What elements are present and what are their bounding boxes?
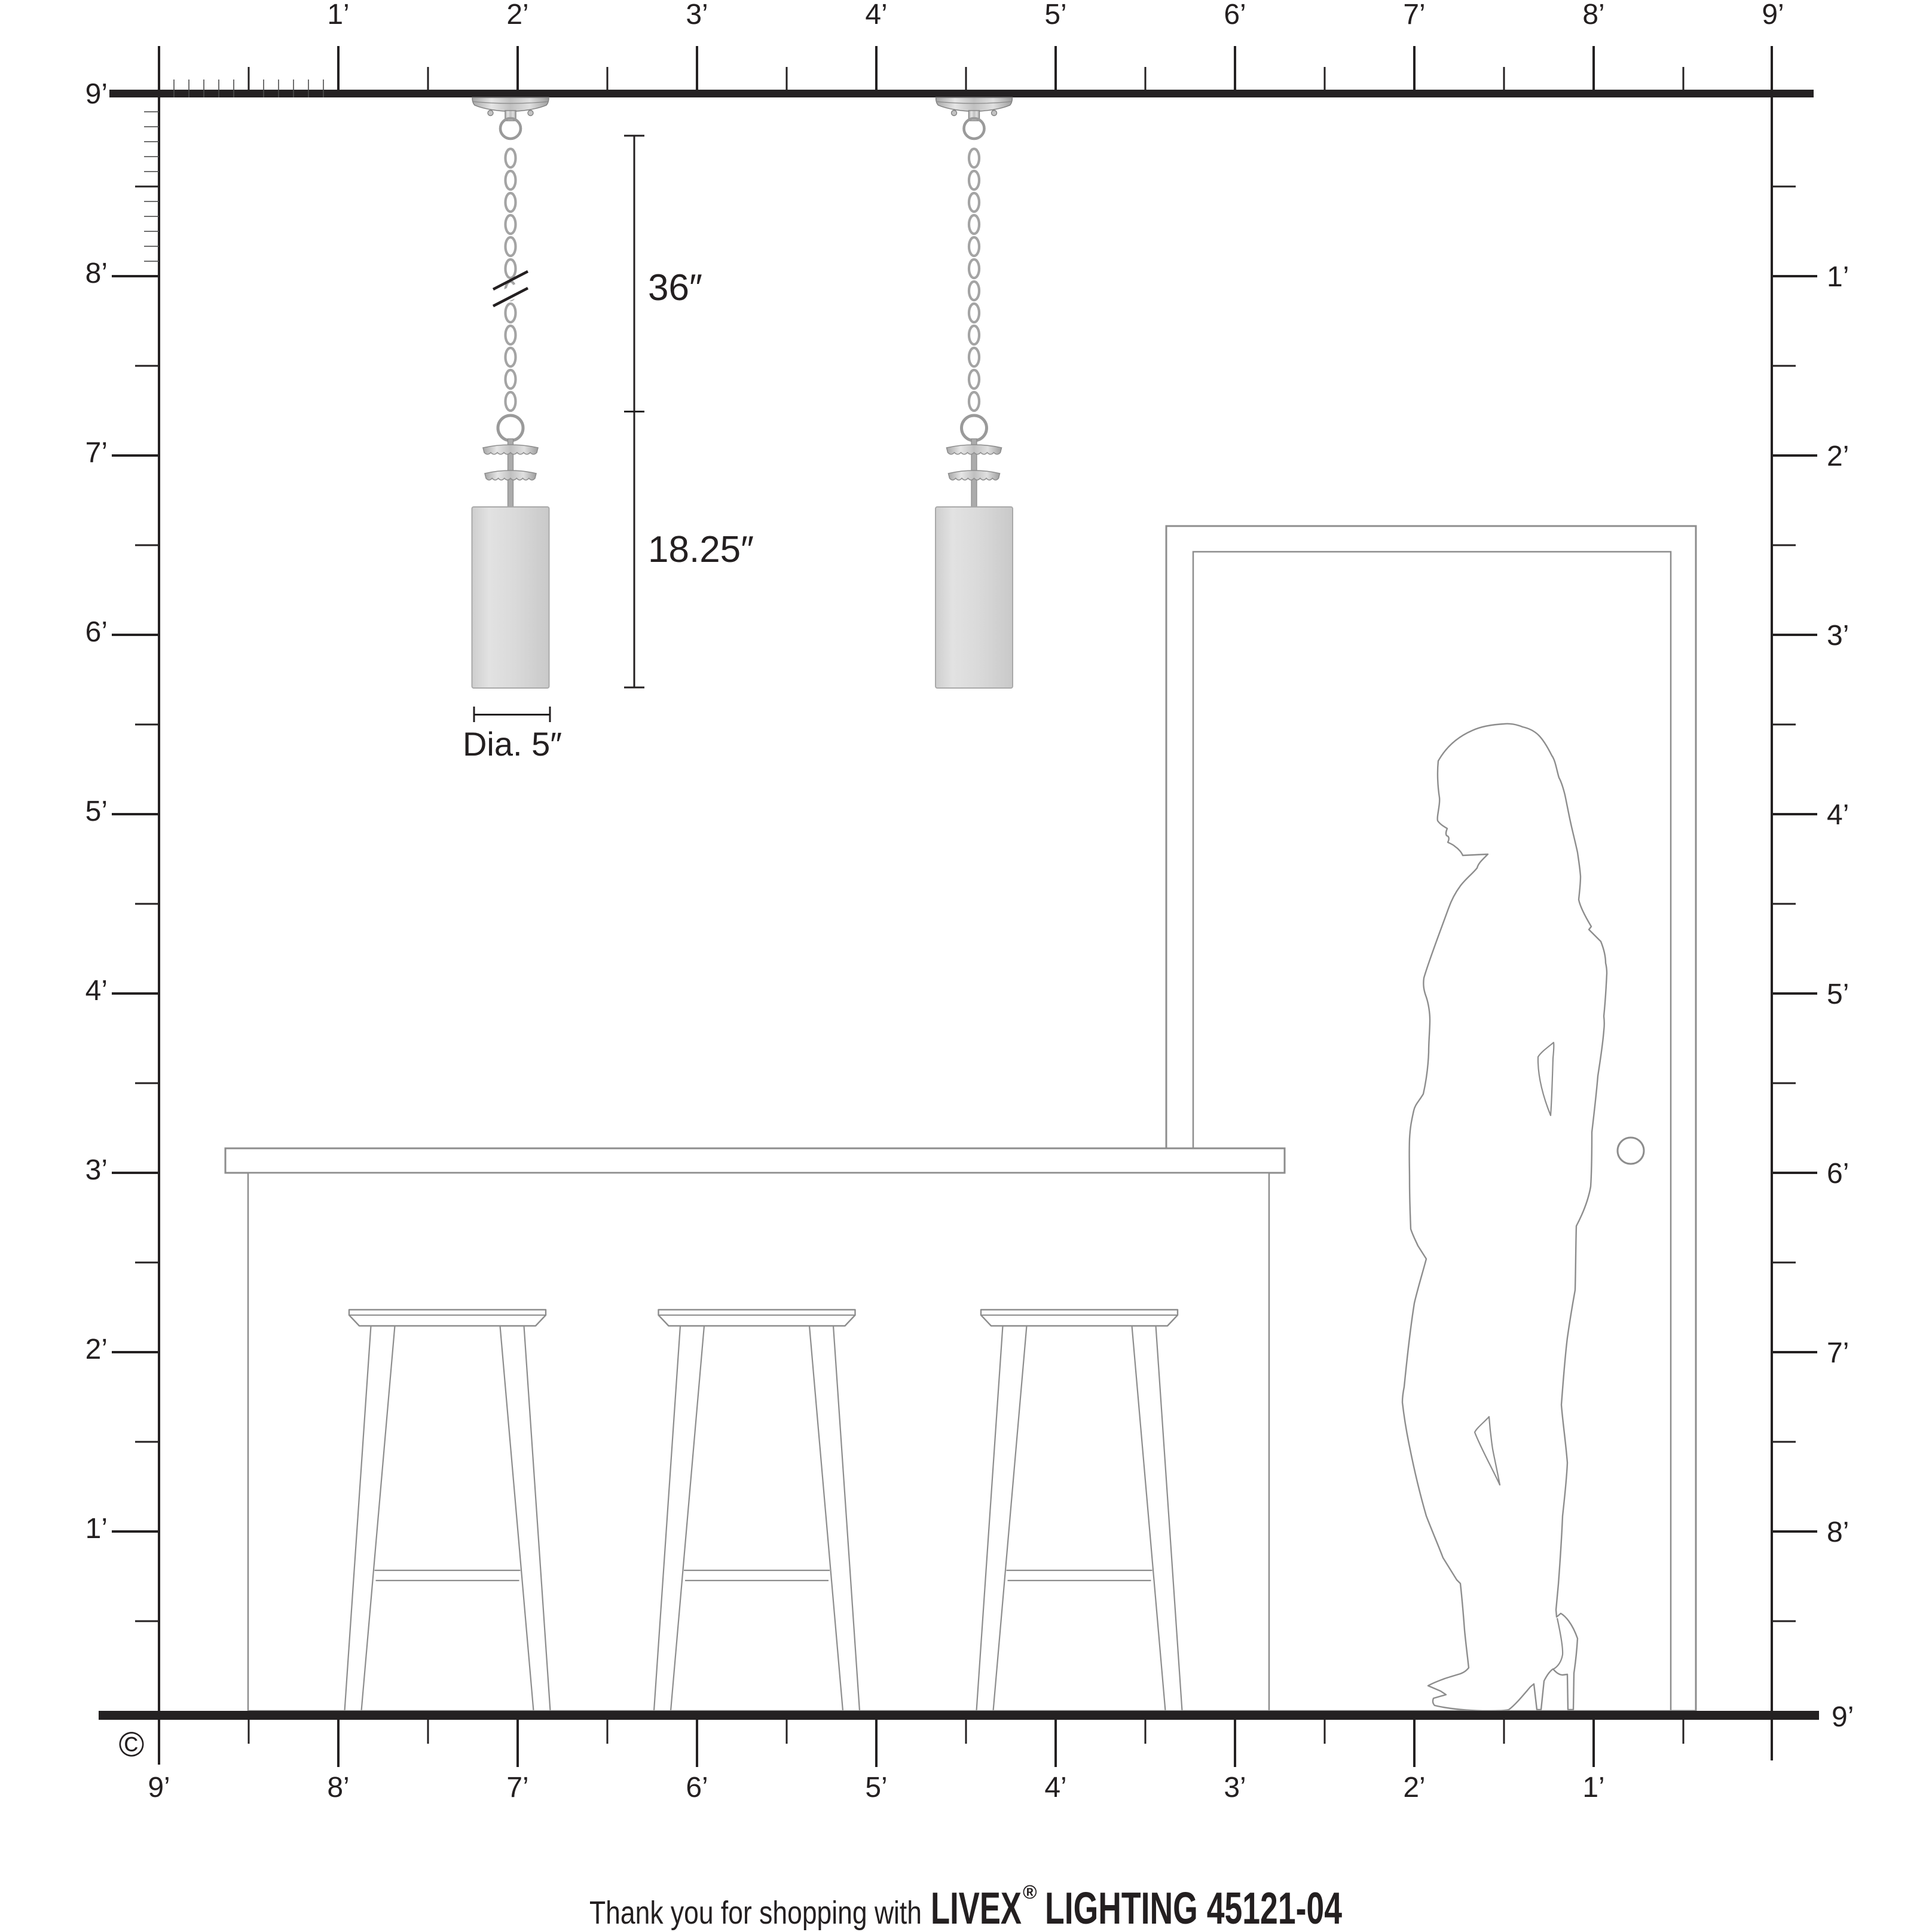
svg-text:8’: 8’: [85, 258, 108, 289]
svg-text:9’: 9’: [1762, 0, 1784, 30]
svg-text:1’: 1’: [1582, 1772, 1604, 1803]
svg-text:36″: 36″: [648, 267, 702, 308]
svg-text:4’: 4’: [85, 975, 108, 1007]
svg-text:8’: 8’: [327, 1772, 349, 1803]
svg-text:9’: 9’: [85, 78, 108, 110]
svg-text:7’: 7’: [506, 1772, 528, 1803]
svg-text:7’: 7’: [85, 437, 108, 469]
svg-text:2’: 2’: [85, 1334, 108, 1365]
svg-text:5’: 5’: [1827, 979, 1849, 1010]
svg-text:5’: 5’: [85, 796, 108, 827]
svg-text:Thank you for shopping with: Thank you for shopping with: [589, 1895, 922, 1931]
svg-text:1’: 1’: [1827, 261, 1849, 293]
svg-text:5’: 5’: [865, 1772, 887, 1803]
svg-text:®: ®: [1023, 1881, 1037, 1903]
svg-text:3’: 3’: [85, 1154, 108, 1186]
svg-text:2’: 2’: [1403, 1772, 1425, 1803]
svg-text:6’: 6’: [1827, 1158, 1849, 1190]
svg-text:3’: 3’: [1224, 1772, 1246, 1803]
svg-text:7’: 7’: [1403, 0, 1425, 30]
svg-text:2’: 2’: [506, 0, 528, 30]
svg-text:4’: 4’: [865, 0, 887, 30]
svg-text:2’: 2’: [1827, 441, 1849, 472]
svg-text:1’: 1’: [327, 0, 349, 30]
svg-text:9’: 9’: [148, 1772, 170, 1803]
svg-text:3’: 3’: [686, 0, 708, 30]
svg-text:8’: 8’: [1827, 1517, 1849, 1548]
svg-text:6’: 6’: [686, 1772, 708, 1803]
svg-text:1’: 1’: [85, 1513, 108, 1545]
svg-text:LIGHTING 45121-04: LIGHTING 45121-04: [1045, 1883, 1342, 1932]
svg-text:6’: 6’: [1224, 0, 1246, 30]
svg-text:4’: 4’: [1044, 1772, 1066, 1803]
svg-text:Dia. 5″: Dia. 5″: [463, 725, 562, 763]
svg-text:LIVEX: LIVEX: [931, 1883, 1022, 1932]
svg-text:9’: 9’: [1832, 1701, 1854, 1733]
svg-text:5’: 5’: [1044, 0, 1066, 30]
svg-text:7’: 7’: [1827, 1337, 1849, 1369]
svg-text:8’: 8’: [1582, 0, 1604, 30]
svg-text:4’: 4’: [1827, 799, 1849, 831]
svg-text:18.25″: 18.25″: [648, 529, 754, 570]
svg-text:6’: 6’: [85, 616, 108, 648]
svg-text:3’: 3’: [1827, 620, 1849, 652]
svg-text:©: ©: [119, 1725, 145, 1764]
